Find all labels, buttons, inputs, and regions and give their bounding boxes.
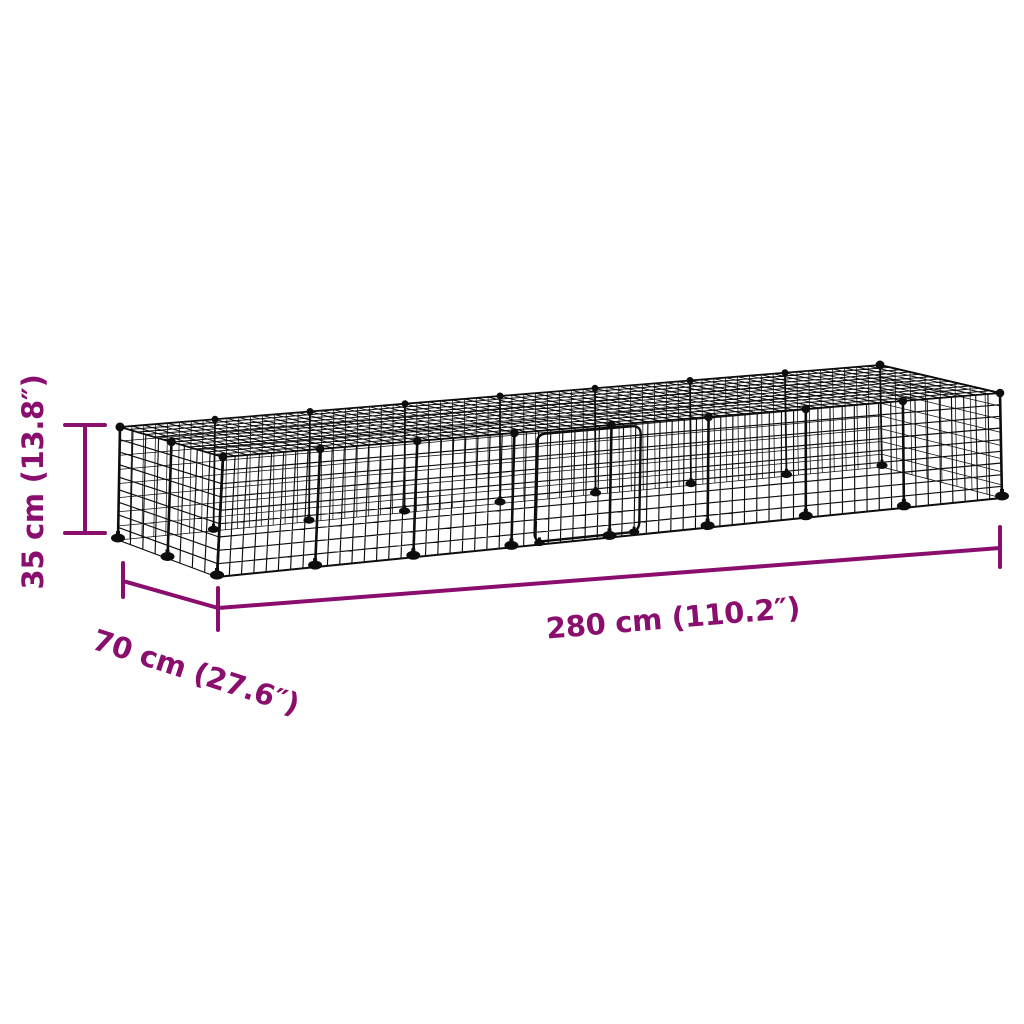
height-dimension-label: 35 cm (13.8″)	[16, 374, 50, 589]
product-dimension-diagram: 35 cm (13.8″) 70 cm (27.6″) 280 cm (110.…	[0, 0, 1024, 1024]
dimension-lines	[65, 425, 1000, 630]
cage-wireframe-illustration	[0, 0, 1024, 1024]
frame-posts-and-connectors	[111, 361, 1009, 580]
roof-mesh-grid	[120, 365, 1000, 457]
